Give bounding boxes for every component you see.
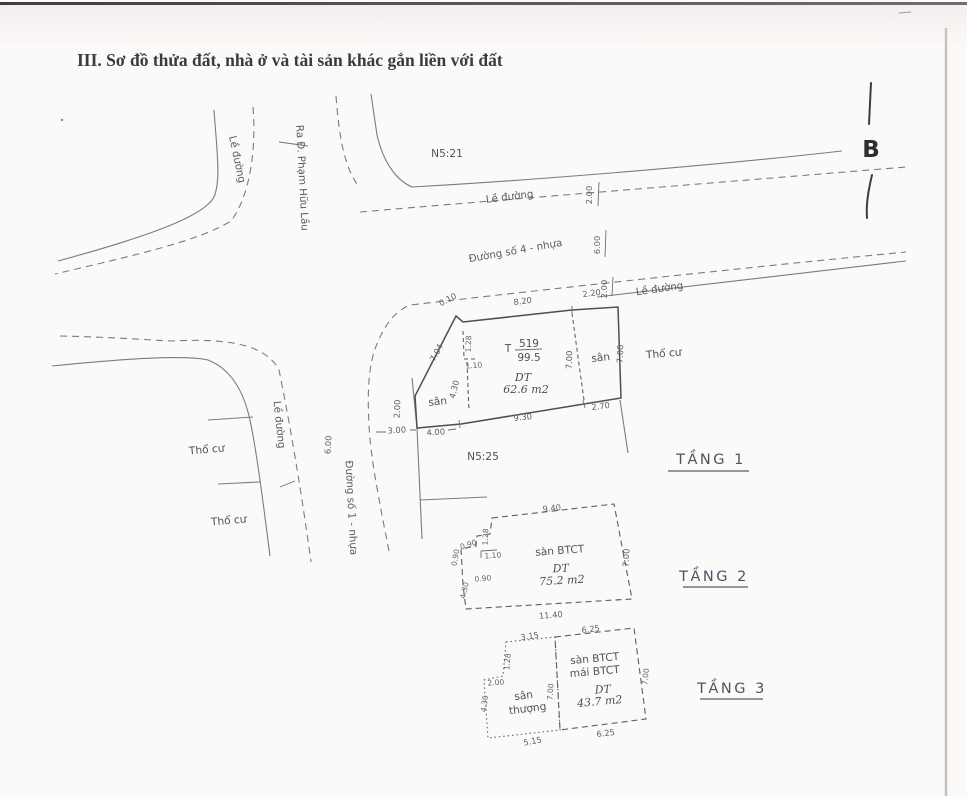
dim-f3-terrace-vert: 4.30 — [479, 695, 490, 713]
road4-north-edge-solid — [371, 94, 842, 187]
dim-f3-divider: 7.00 — [545, 683, 555, 701]
sidewalk-tick — [280, 481, 295, 487]
dim-f3-terrace-top: 3.15 — [520, 630, 540, 642]
floor2-slab-label: sàn BTCT — [535, 543, 585, 558]
scanned-document-page: III. Sơ đồ thửa đất, nhà ở và tài sản kh… — [0, 0, 967, 797]
dim-road4-north-sidewalk: 2.00 — [584, 186, 594, 204]
boundary-branch-west-2 — [218, 482, 260, 484]
parcel-boundary — [415, 307, 621, 428]
road-lines — [52, 94, 906, 562]
dim-yard-divider: 7.00 — [564, 350, 575, 369]
dim-f2-top: 9.40 — [542, 502, 561, 514]
dim-parcel-bottom-right: 2.70 — [591, 400, 611, 412]
north-arrow-label: B — [862, 137, 880, 163]
parcel-outline — [376, 306, 621, 432]
nw-corner-curb-dashed — [55, 107, 254, 274]
road1-east-edge-solid — [412, 378, 422, 539]
floor3-plan — [484, 628, 646, 738]
road-label-sidewalk-west: Lề đường — [271, 400, 288, 449]
boundary-branch-west-1 — [208, 417, 253, 420]
dim-f3-slab-right: 7.00 — [640, 668, 651, 686]
site-plan-figure: N5:21 Lề đường Ra Đ. Phạm Hữu Lầu Lề đườ… — [0, 0, 967, 797]
dim-parcel-slant: 7.04 — [428, 342, 446, 363]
floor2-area-value: 75.2 m2 — [539, 573, 585, 588]
dim-f2-right: 7.00 — [621, 548, 632, 567]
road4-north-sidewalk-dashed — [360, 167, 906, 212]
road1-west-sidewalk-dashed — [60, 336, 311, 562]
floor3-caption: TẦNG 3 — [696, 678, 767, 697]
dim-f2-bottom: 11.40 — [539, 609, 563, 621]
dim-f2-notch2: 1.10 — [484, 550, 502, 560]
north-road-west-dashed — [336, 96, 357, 184]
scan-speck-2 — [61, 119, 63, 121]
floor3-terrace-label-2: thượng — [508, 701, 547, 717]
lot-label-n521: N5:21 — [431, 148, 463, 160]
dim-parcel-right: 7.00 — [615, 344, 626, 363]
lot-label-n525: N5:25 — [467, 451, 499, 463]
road-label-road4: Đường số 4 - nhựa — [468, 237, 563, 265]
dim-road4-width: 6.00 — [592, 236, 602, 254]
landuse-label-west-2: Thổ cư — [209, 512, 248, 528]
dim-road1-width: 6.00 — [323, 435, 334, 454]
lot-number: 519 — [519, 338, 539, 350]
lot-denominator: 99.5 — [517, 352, 540, 364]
dim-f2-left-top: 1.28 — [481, 528, 491, 545]
dim-f2-left-bottom: 4.30 — [458, 581, 470, 600]
dim-f2-left-outer: 0.90 — [450, 548, 462, 566]
dim-f3-slab-top: 6.25 — [581, 623, 601, 635]
lot-number-prefix: T — [504, 343, 512, 355]
dim-parcel-top-jog: 0.10 — [437, 291, 458, 309]
dim-parcel-bottom: 9.30 — [513, 411, 532, 423]
scan-speck-1 — [899, 12, 911, 13]
landuse-label-east: Thổ cư — [644, 345, 683, 361]
floor3-slab-outline — [555, 628, 646, 730]
dim-parcel-inner-top: 1.28 — [464, 335, 474, 352]
dim-parcel-top: 8.20 — [513, 295, 533, 307]
dim-parcel-inner-mid: 1.10 — [465, 360, 483, 370]
dim-f2-notch1: 0.90 — [459, 538, 478, 552]
north-arrow-upper-line — [869, 83, 871, 124]
dim-parcel-bottom-left: 4.00 — [426, 426, 445, 437]
parcel-area-value: 62.6 m2 — [503, 383, 548, 396]
road-label-pham-huu-lau: Ra Đ. Phạm Hữu Lầu — [293, 125, 311, 232]
yard-label-right: sân — [591, 351, 611, 365]
road-label-sidewalk-north: Lề đường — [485, 188, 534, 206]
road-label-road1: Đường số 1 - nhựa — [343, 460, 360, 555]
dim-f2-notch3: 0.90 — [474, 573, 492, 583]
nw-corner-curb-solid — [58, 110, 218, 261]
landuse-label-west-1: Thổ cư — [187, 441, 226, 457]
dim-f3-terrace-bottom: 5.15 — [523, 735, 543, 748]
parcel-right-boundary-ext — [620, 400, 628, 453]
yard-label-left: sân — [428, 395, 448, 409]
boundary-branch-n525 — [420, 497, 487, 500]
dim-f3-terrace-jog: 1.28 — [502, 653, 512, 671]
road-label-sidewalk-east: Lề đường — [635, 280, 684, 299]
dim-f3-terrace-left: 2.00 — [487, 677, 505, 687]
dim-parcel-left: 2.00 — [392, 399, 403, 418]
floor1-caption: TẦNG 1 — [675, 449, 746, 468]
dim-f3-slab-bottom: 6.25 — [596, 727, 616, 739]
dim-parcel-offset: 3.00 — [387, 424, 406, 435]
floor3-area-value: 43.7 m2 — [576, 693, 623, 710]
floor3-terrace-label-1: sân — [514, 689, 534, 703]
dim-parcel-inner-bottom: 4.30 — [447, 379, 461, 399]
north-arrow-lower-line — [867, 175, 872, 218]
road-label-sidewalk-nw: Lề đường — [226, 135, 248, 184]
floor2-caption: TẦNG 2 — [678, 566, 749, 585]
